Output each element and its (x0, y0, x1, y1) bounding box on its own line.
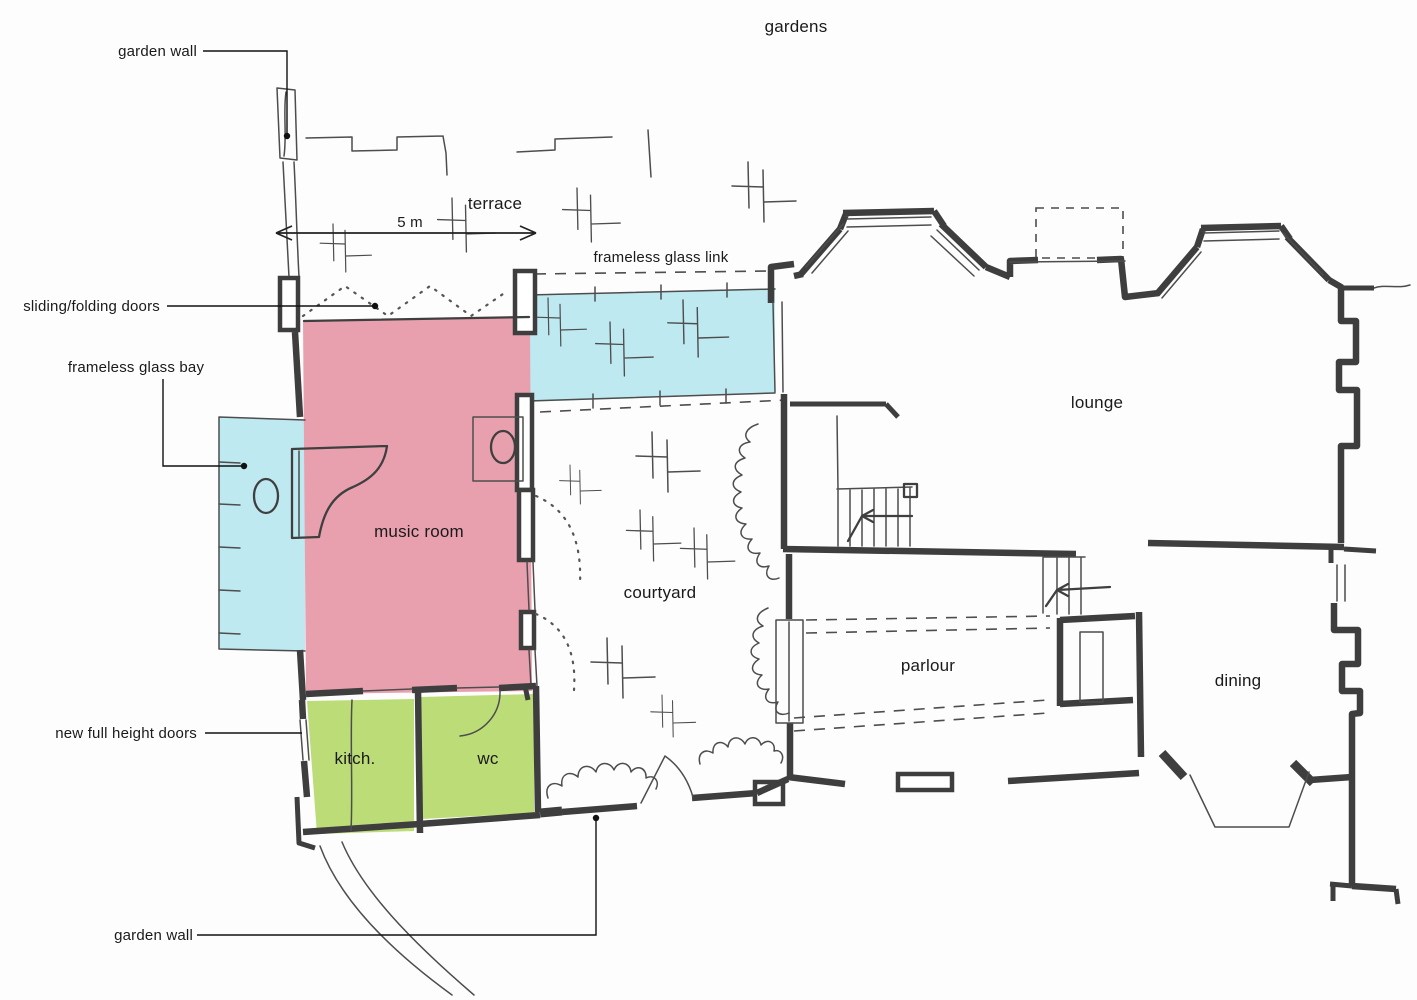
lounge-label: lounge (1071, 393, 1123, 412)
garden-path (320, 842, 474, 995)
garden-wall-top-sketch (277, 88, 299, 277)
garden-wall-bottom-label: garden wall (114, 927, 193, 944)
stairs-secondary (1043, 557, 1110, 614)
wc-label: wc (476, 749, 498, 768)
music-room-label: music room (374, 522, 464, 541)
new-full-height-doors-label: new full height doors (55, 725, 197, 742)
frameless-glass-link-label: frameless glass link (594, 249, 729, 266)
terrace-post-right (515, 271, 535, 333)
frameless-glass-bay-label: frameless glass bay (68, 359, 205, 376)
dining-label: dining (1215, 671, 1262, 690)
stairs-main (837, 416, 917, 546)
courtyard-label: courtyard (624, 583, 697, 602)
sliding-doors-zigzag (303, 286, 529, 321)
terrace-label: terrace (468, 194, 522, 213)
gardens-label: gardens (765, 17, 828, 36)
glass-link-fill (528, 288, 775, 402)
dashed-lines (535, 208, 1123, 731)
floor-plan-canvas: gardens terrace 5 m garden wall sliding/… (0, 0, 1417, 1000)
garden-wall-top-label: garden wall (118, 43, 197, 60)
parlour-label: parlour (901, 656, 955, 675)
terrace-post-left (280, 278, 298, 330)
kitchen-label: kitch. (335, 749, 376, 768)
scale-label: 5 m (397, 214, 423, 231)
music-room-fill (303, 317, 532, 694)
glazing-lines (773, 217, 1323, 827)
sliding-folding-doors-label: sliding/folding doors (23, 298, 160, 315)
